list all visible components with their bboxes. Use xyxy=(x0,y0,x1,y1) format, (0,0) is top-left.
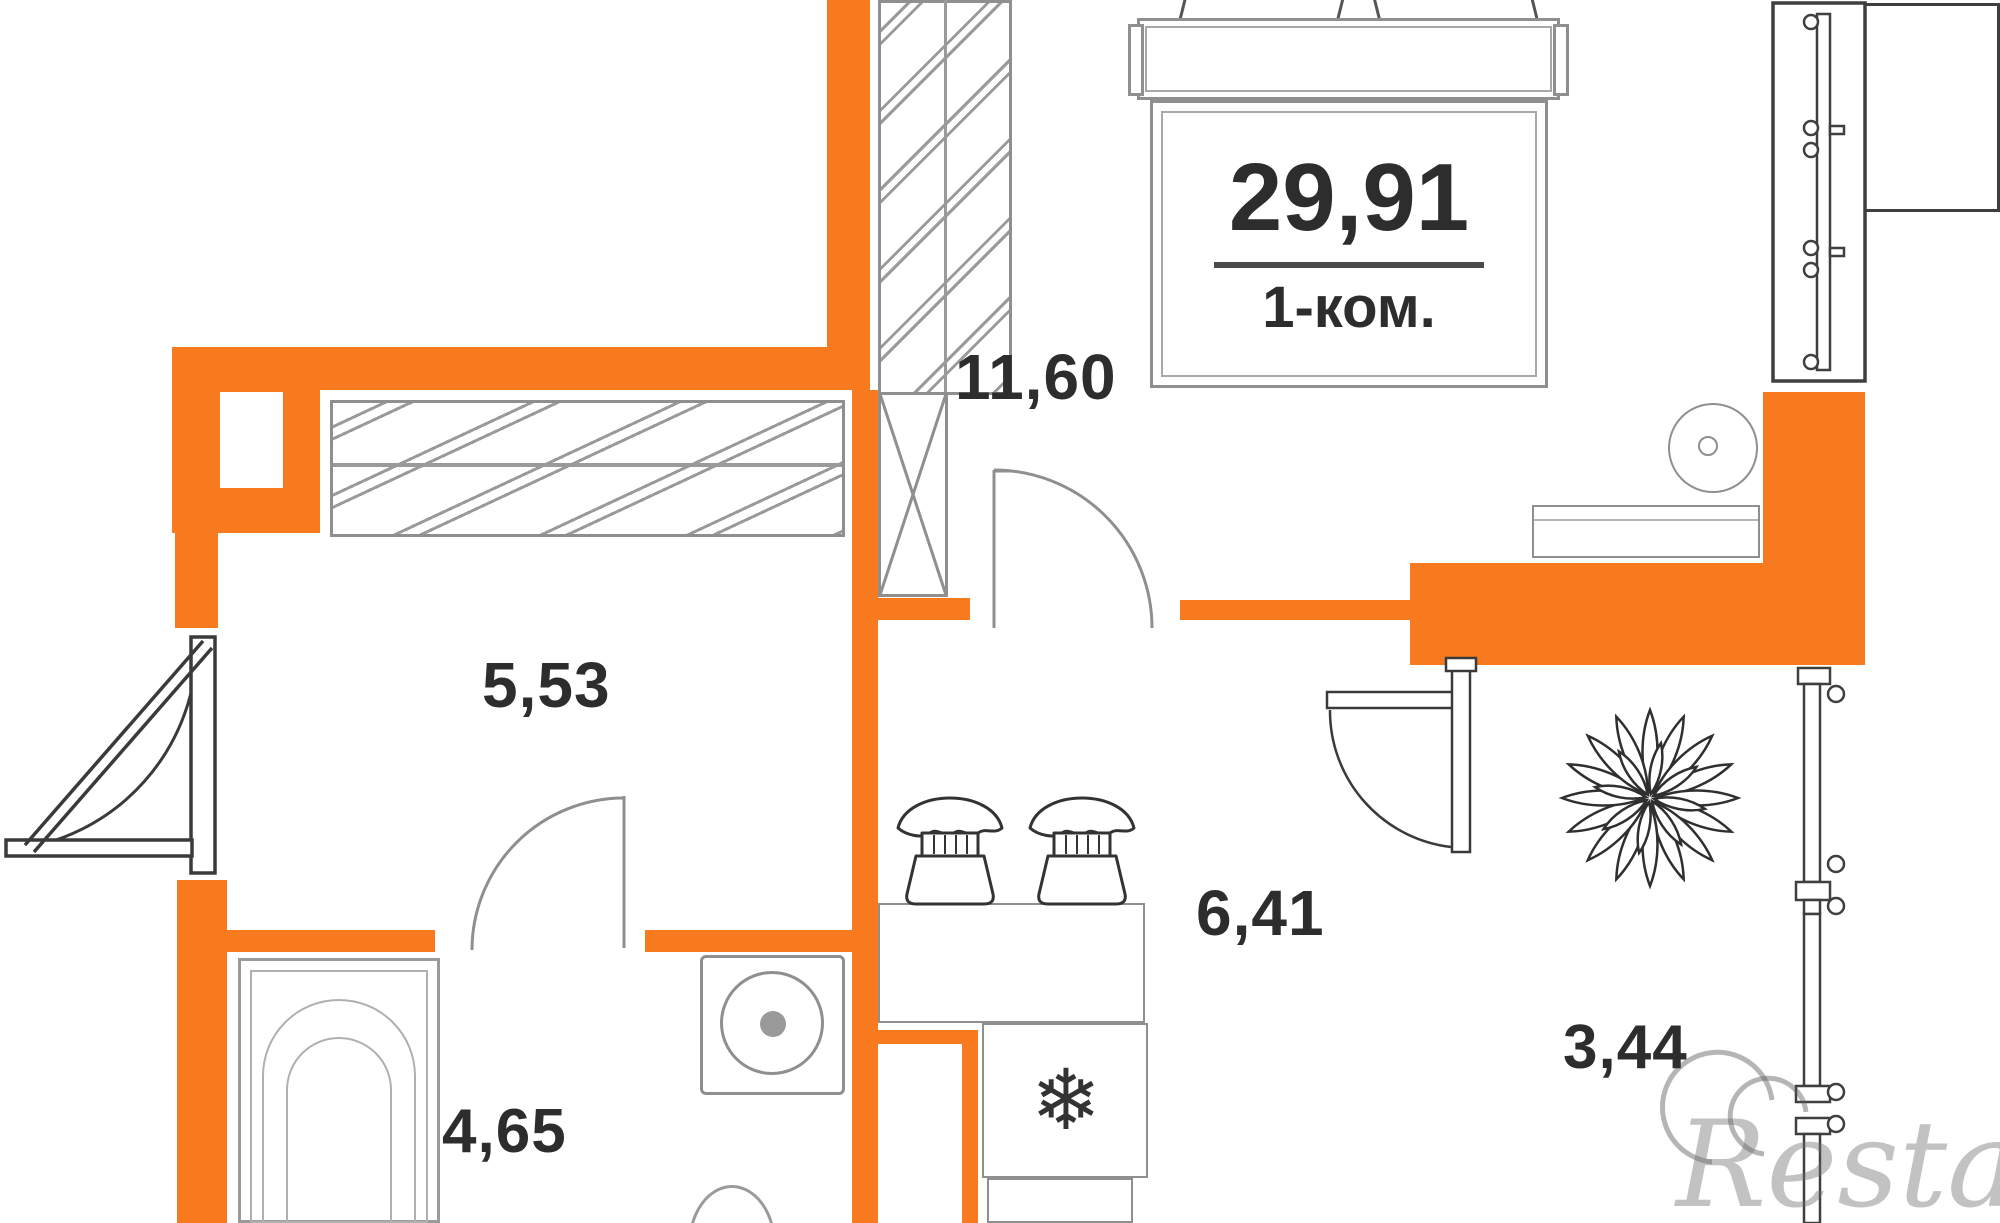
balcony-door-icon xyxy=(1327,658,1476,852)
plan-linework xyxy=(0,0,2000,1223)
stove-pots-icon xyxy=(898,798,1134,904)
area-label-kitchen: 6,41 xyxy=(1196,876,1325,950)
area-label-balcony: 3,44 xyxy=(1563,1012,1688,1083)
area-label-hallway: 5,53 xyxy=(482,648,611,722)
area-label-living-room: 11,60 xyxy=(955,340,1117,414)
bathroom-door-icon xyxy=(472,796,624,950)
balcony-glazing-top-icon xyxy=(1773,3,1865,381)
watermark-text: Restate xyxy=(1676,1096,2000,1223)
entrance-door-icon xyxy=(6,637,215,873)
living-room-door-icon xyxy=(994,470,1152,628)
column-x-brace xyxy=(880,394,946,595)
area-label-bathroom: 4,65 xyxy=(442,1096,567,1167)
plant-icon xyxy=(1562,710,1738,886)
floor-plan-image: 29,91 1-ком. ❄ xyxy=(0,0,2000,1223)
